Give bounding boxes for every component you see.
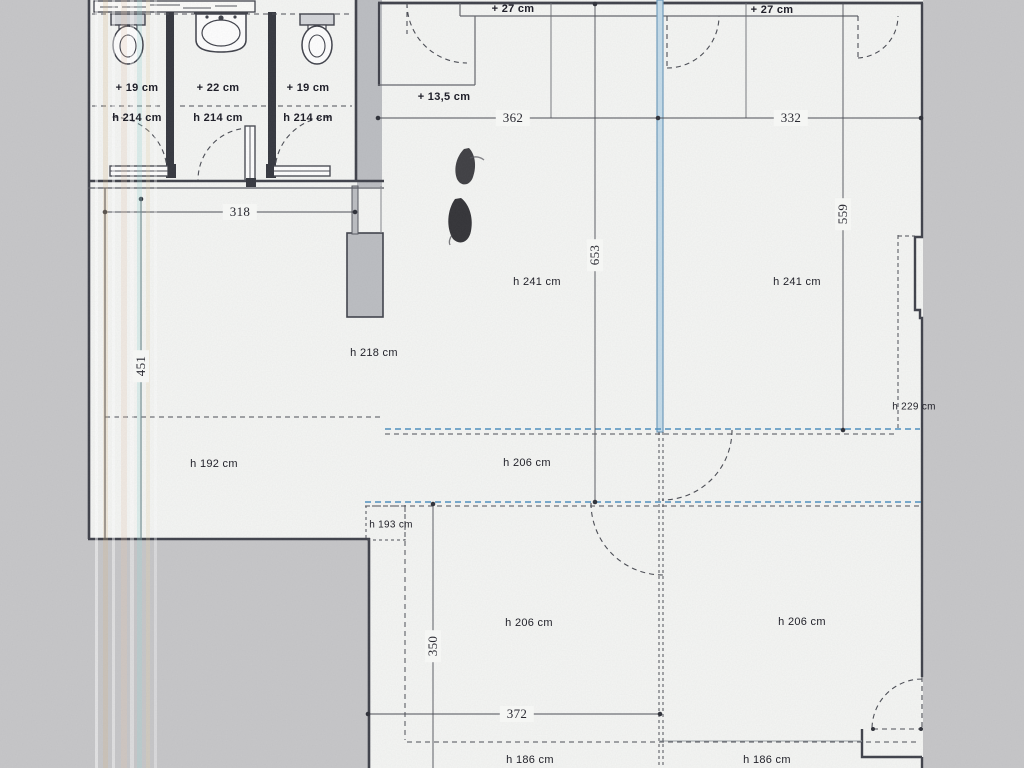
stall-offset-label: + 19 cm: [116, 82, 159, 94]
height-label-h206-mid: h 206 cm: [503, 457, 551, 469]
height-label-h218: h 218 cm: [350, 347, 398, 359]
offset-label-plus135: + 13,5 cm: [418, 91, 471, 103]
dimension-350: 350: [425, 630, 441, 662]
floor-plan-scan: + 19 cm + 22 cm + 19 cm h 214 cm h 214 c…: [0, 0, 1024, 768]
stall-offset-label: + 22 cm: [197, 82, 240, 94]
height-label-h206-bottom-right: h 206 cm: [778, 616, 826, 628]
height-label-h229: h 229 cm: [892, 402, 936, 413]
offset-label-plus27-right: + 27 cm: [751, 4, 794, 16]
dimension-559: 559: [835, 198, 851, 230]
offset-label-plus27-left: + 27 cm: [492, 3, 535, 15]
stall-height-label: h 214 cm: [283, 112, 332, 124]
height-label-h206-bottom-left: h 206 cm: [505, 617, 553, 629]
dimension-653: 653: [587, 239, 603, 271]
dimension-362: 362: [496, 110, 530, 126]
height-label-h241-left: h 241 cm: [513, 276, 561, 288]
height-label-h241-right: h 241 cm: [773, 276, 821, 288]
height-label-h192: h 192 cm: [190, 458, 238, 470]
stall-offset-label: + 19 cm: [287, 82, 330, 94]
height-label-h193: h 193 cm: [369, 520, 413, 531]
dimension-451: 451: [133, 350, 149, 382]
height-label-h186-right: h 186 cm: [743, 754, 791, 766]
stall-height-label: h 214 cm: [193, 112, 242, 124]
dimension-332: 332: [774, 110, 808, 126]
dimension-318: 318: [223, 204, 257, 220]
stall-height-label: h 214 cm: [112, 112, 161, 124]
dimension-372: 372: [500, 706, 534, 722]
height-label-h186-left: h 186 cm: [506, 754, 554, 766]
